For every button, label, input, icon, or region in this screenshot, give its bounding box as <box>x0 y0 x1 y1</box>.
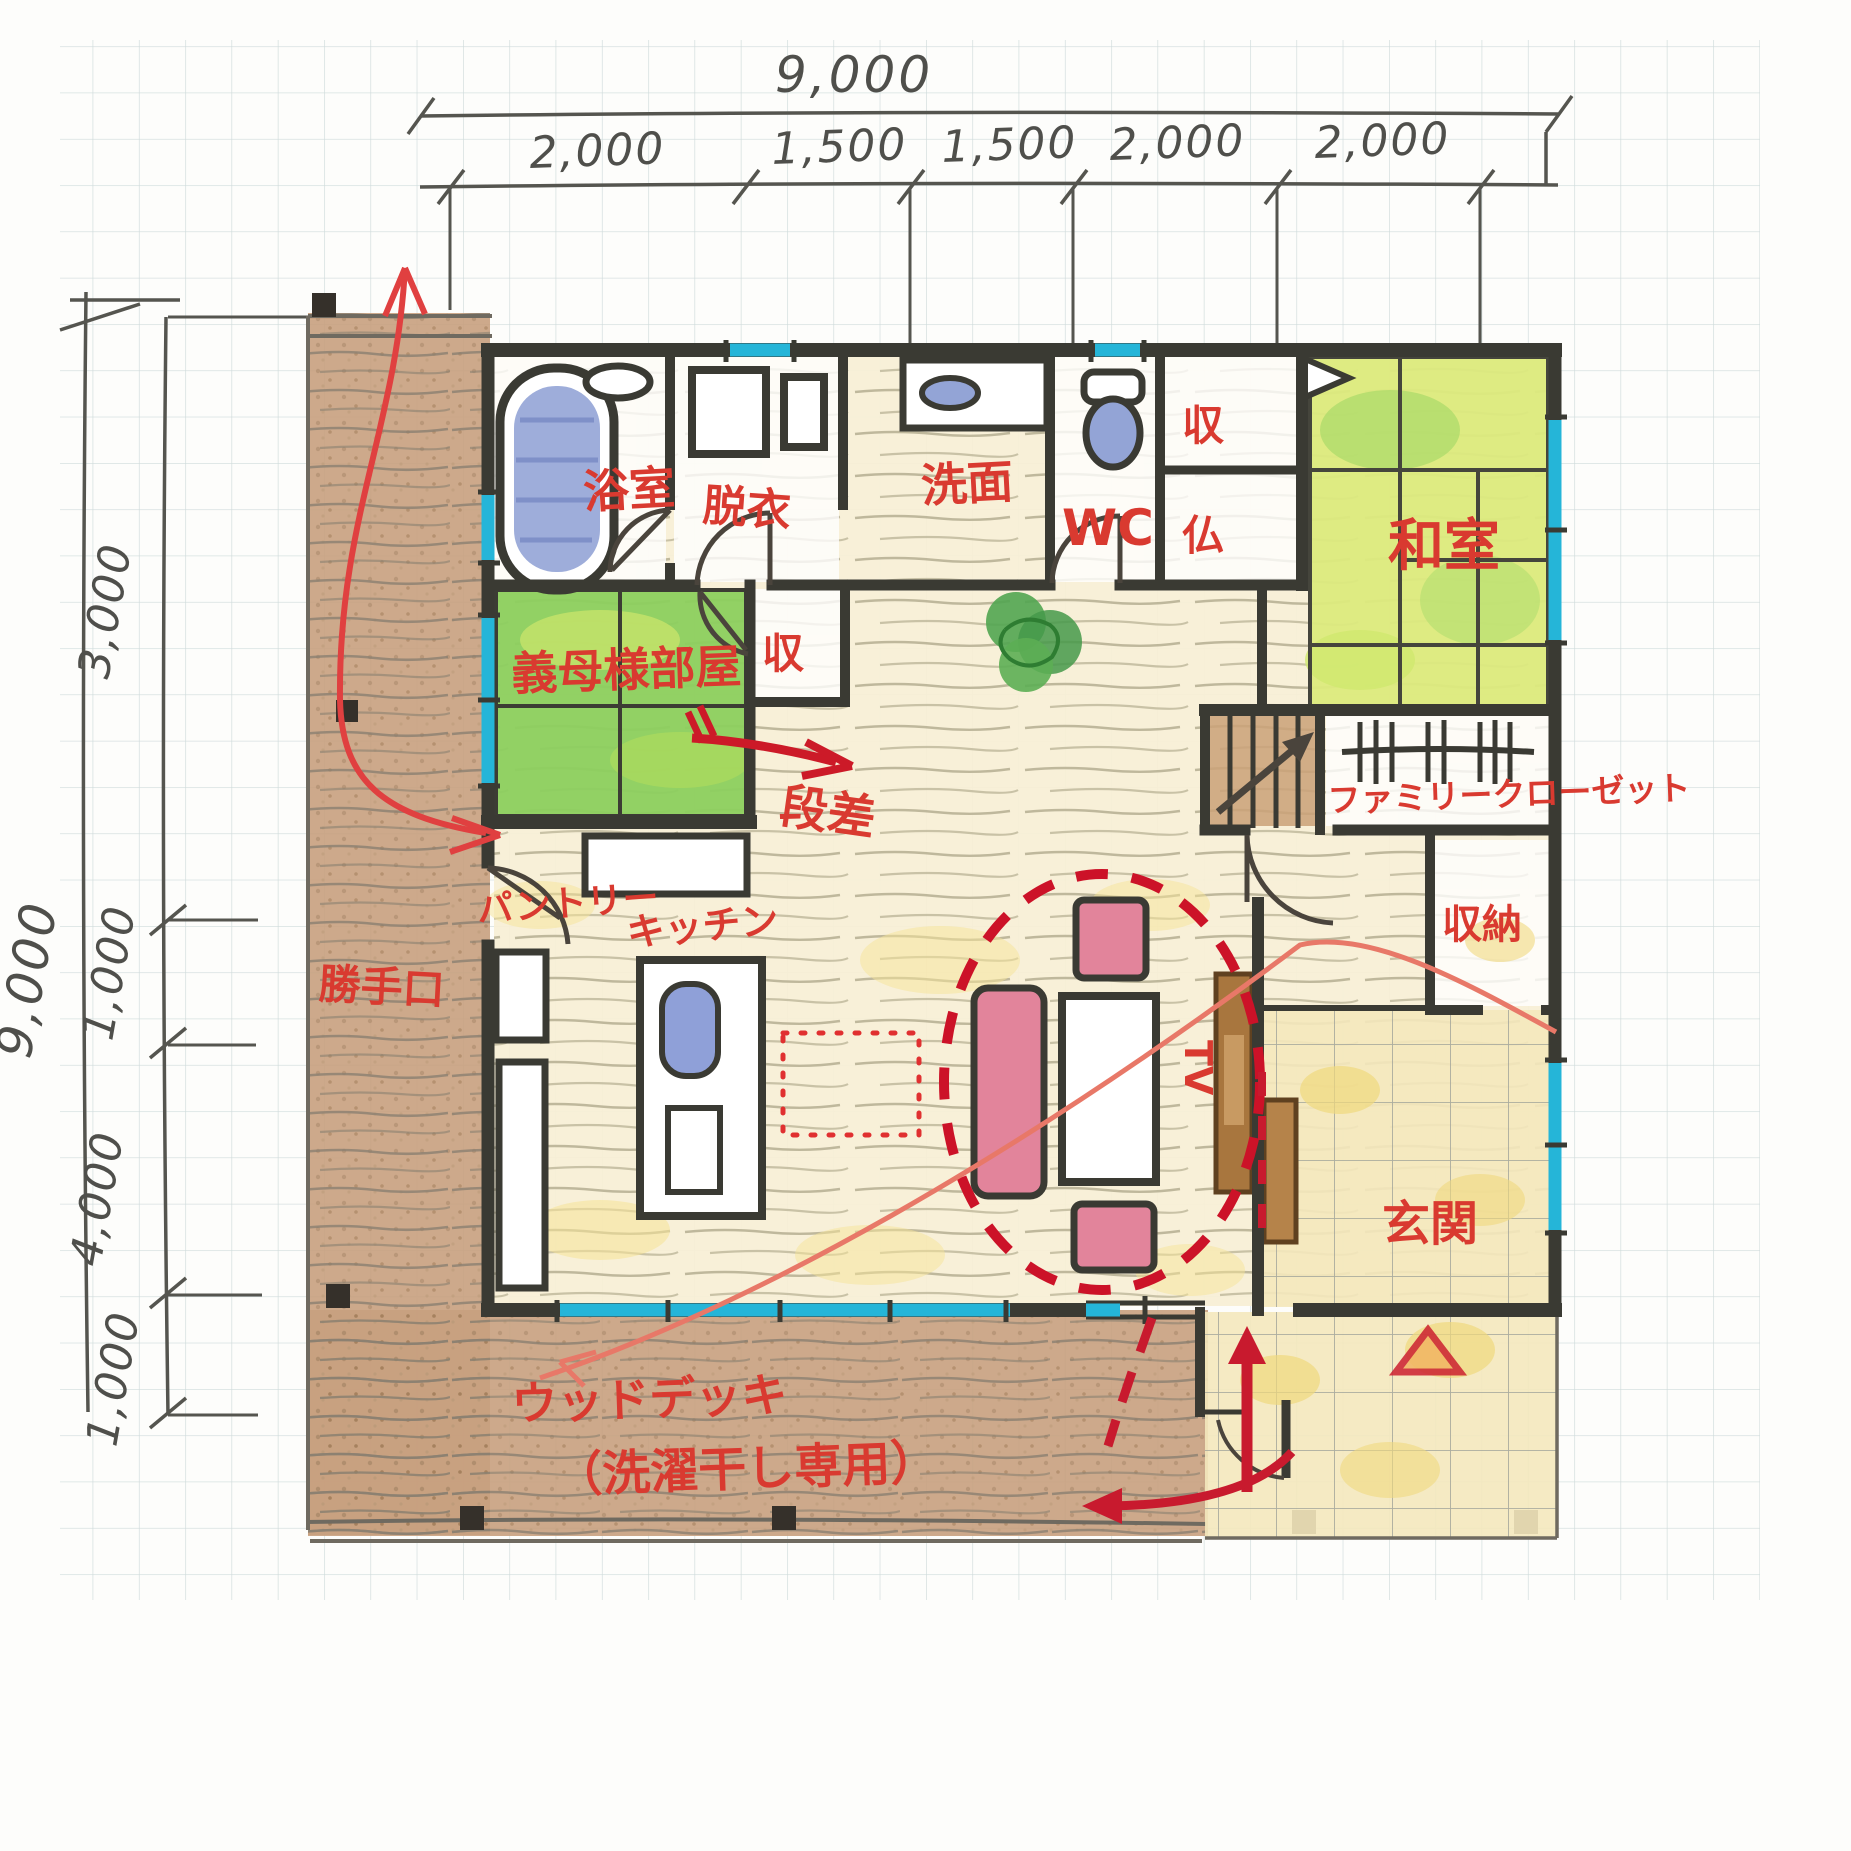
label-deck-1: ウッドデッキ <box>510 1367 788 1431</box>
pantry-shelves <box>496 952 546 1288</box>
label-closet-mid: 収 <box>762 629 804 678</box>
label-wc: WC <box>1062 499 1154 557</box>
label-washroom: 洗面 <box>920 454 1015 513</box>
label-closet-upper: 収 <box>1182 401 1224 450</box>
label-mother-room: 義母様部屋 <box>510 639 742 701</box>
label-back-door: 勝手口 <box>317 959 445 1015</box>
top-seg-4: 2,000 <box>1109 115 1247 171</box>
label-tv: TV <box>1176 1040 1220 1096</box>
toilet-icon <box>1084 372 1142 467</box>
top-seg-5: 2,000 <box>1314 113 1452 169</box>
hand-drawn-floor-plan: 9,000 2,000 1,500 1,500 2,000 2,000 9,00… <box>0 0 1851 1851</box>
label-storage: 収納 <box>1442 902 1522 948</box>
top-seg-3: 1,500 <box>941 117 1079 173</box>
mother-in-law-room-tatami <box>496 590 750 816</box>
label-bath: 浴室 <box>582 460 677 519</box>
sofa <box>974 988 1044 1196</box>
top-seg-2: 1,500 <box>771 119 909 175</box>
label-washitsu: 和室 <box>1388 514 1500 579</box>
label-genkan: 玄関 <box>1382 1196 1478 1252</box>
washer-icon <box>692 370 824 454</box>
label-butsudan: 仏 <box>1182 511 1224 560</box>
shoe-cabinet <box>1264 1100 1296 1242</box>
top-seg-1: 2,000 <box>529 123 667 179</box>
top-total-dimension: 9,000 <box>775 46 933 104</box>
floor-plan-canvas: 9,000 2,000 1,500 1,500 2,000 2,000 9,00… <box>0 0 1851 1851</box>
living-table <box>1062 996 1156 1182</box>
stairs-icon <box>1208 712 1318 828</box>
label-dressing: 脱衣 <box>701 480 792 537</box>
vanity-sink-icon <box>903 360 1047 428</box>
shower-drain-icon <box>586 366 650 398</box>
kitchen-island <box>640 960 762 1216</box>
entrance-approach <box>1205 1312 1557 1538</box>
